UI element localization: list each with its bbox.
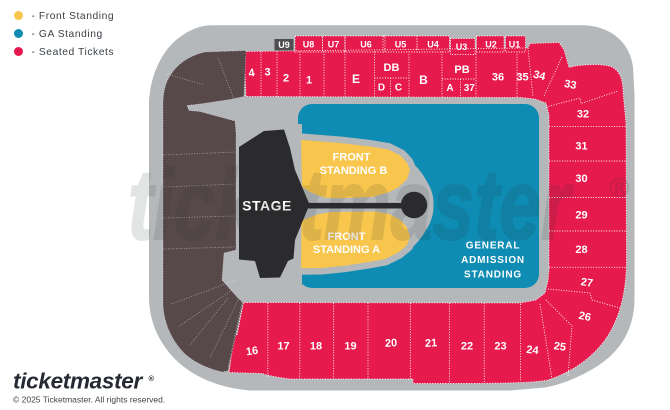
svg-text:© 2025 Ticketmaster. All right: © 2025 Ticketmaster. All rights reserved… bbox=[13, 395, 165, 405]
svg-text:PB: PB bbox=[454, 64, 469, 76]
svg-text:U9: U9 bbox=[278, 40, 290, 50]
svg-text:2: 2 bbox=[283, 73, 289, 85]
svg-text:20: 20 bbox=[385, 337, 398, 350]
svg-text:DB: DB bbox=[384, 62, 400, 74]
svg-text:®: ® bbox=[149, 374, 155, 383]
svg-text:E: E bbox=[352, 72, 360, 86]
svg-text:37: 37 bbox=[464, 83, 476, 94]
svg-text:U7: U7 bbox=[328, 40, 340, 50]
svg-text:STANDING: STANDING bbox=[464, 269, 522, 280]
svg-text:27: 27 bbox=[580, 276, 594, 290]
svg-text:U1: U1 bbox=[509, 40, 521, 50]
svg-text:36: 36 bbox=[492, 72, 504, 84]
svg-text:19: 19 bbox=[344, 341, 356, 353]
svg-text:28: 28 bbox=[575, 244, 587, 256]
svg-text:U4: U4 bbox=[427, 40, 439, 50]
svg-text:- Front Standing: - Front Standing bbox=[32, 11, 115, 22]
svg-text:ticketmaster: ticketmaster bbox=[128, 149, 574, 261]
svg-text:35: 35 bbox=[516, 72, 528, 84]
svg-text:23: 23 bbox=[494, 341, 506, 353]
svg-text:22: 22 bbox=[461, 341, 473, 353]
svg-text:- GA Standing: - GA Standing bbox=[32, 29, 103, 40]
svg-text:1: 1 bbox=[306, 75, 312, 87]
svg-text:ticketmaster: ticketmaster bbox=[13, 369, 144, 394]
svg-text:A: A bbox=[446, 83, 453, 94]
svg-text:18: 18 bbox=[310, 341, 322, 353]
svg-text:32: 32 bbox=[577, 109, 589, 121]
svg-text:- Seated Tickets: - Seated Tickets bbox=[32, 47, 115, 58]
svg-text:D: D bbox=[378, 82, 385, 93]
svg-text:26: 26 bbox=[578, 310, 592, 324]
svg-text:3: 3 bbox=[264, 67, 270, 79]
svg-text:U5: U5 bbox=[395, 40, 407, 50]
svg-text:U6: U6 bbox=[360, 40, 372, 50]
svg-text:U3: U3 bbox=[456, 42, 468, 52]
svg-text:29: 29 bbox=[575, 210, 587, 222]
svg-text:30: 30 bbox=[575, 173, 587, 185]
svg-text:16: 16 bbox=[245, 345, 259, 359]
svg-text:25: 25 bbox=[553, 340, 567, 354]
svg-text:21: 21 bbox=[425, 337, 438, 350]
svg-text:33: 33 bbox=[563, 78, 577, 92]
svg-text:B: B bbox=[419, 73, 428, 87]
svg-text:®: ® bbox=[609, 173, 629, 203]
svg-text:C: C bbox=[395, 82, 402, 93]
svg-text:U2: U2 bbox=[485, 40, 497, 50]
svg-text:24: 24 bbox=[526, 344, 540, 357]
svg-text:31: 31 bbox=[575, 141, 587, 153]
svg-text:U8: U8 bbox=[303, 40, 315, 50]
svg-text:17: 17 bbox=[277, 341, 289, 353]
